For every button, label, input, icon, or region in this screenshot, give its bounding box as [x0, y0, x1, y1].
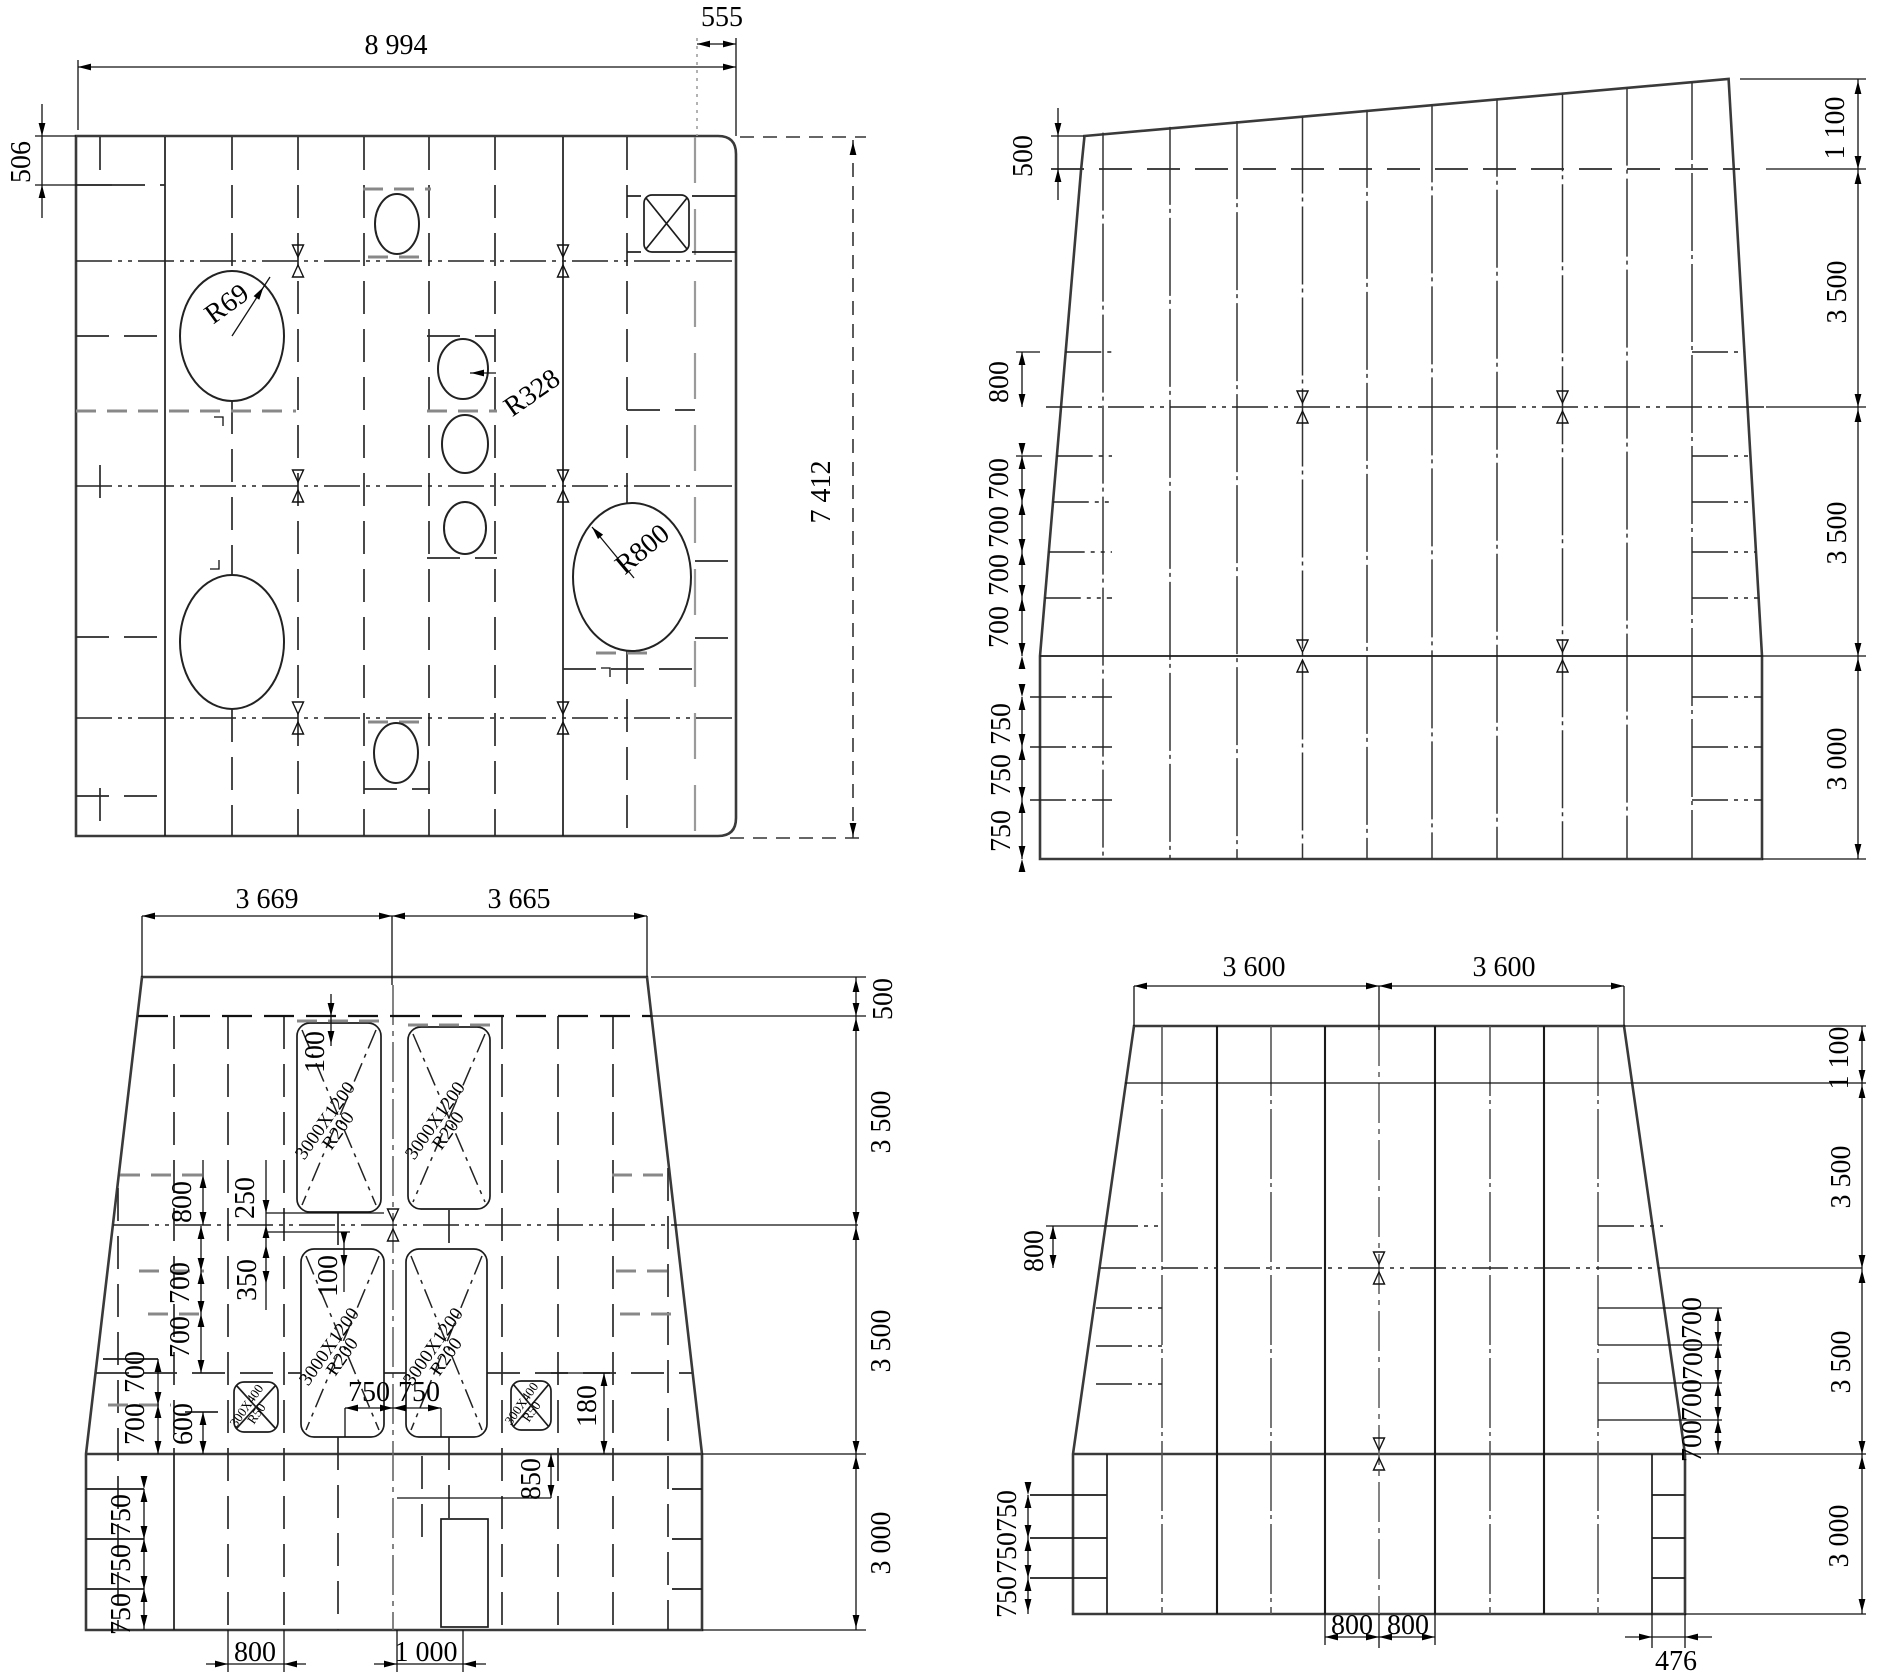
svg-text:700: 700 — [1677, 1297, 1708, 1339]
svg-text:3 500: 3 500 — [1826, 1146, 1857, 1209]
svg-text:3 000: 3 000 — [1822, 728, 1853, 791]
svg-text:3 500: 3 500 — [866, 1091, 897, 1154]
svg-text:700: 700 — [984, 506, 1015, 548]
svg-text:3 500: 3 500 — [866, 1310, 897, 1373]
svg-text:700: 700 — [165, 1316, 196, 1358]
svg-text:700: 700 — [120, 1403, 151, 1445]
svg-text:3 500: 3 500 — [1822, 261, 1853, 324]
svg-text:750: 750 — [106, 1494, 137, 1536]
svg-text:750: 750 — [992, 1490, 1023, 1532]
svg-text:350: 350 — [232, 1259, 263, 1301]
svg-text:700: 700 — [120, 1351, 151, 1393]
svg-text:700: 700 — [984, 554, 1015, 596]
svg-text:750: 750 — [348, 1377, 390, 1408]
svg-text:3 665: 3 665 — [488, 884, 551, 915]
svg-text:750: 750 — [986, 754, 1017, 796]
svg-text:250: 250 — [230, 1177, 261, 1219]
svg-text:3 500: 3 500 — [1826, 1331, 1857, 1394]
svg-text:506: 506 — [6, 141, 37, 183]
svg-text:1 100: 1 100 — [1820, 97, 1851, 160]
svg-text:3 500: 3 500 — [1822, 502, 1853, 565]
svg-text:750: 750 — [986, 810, 1017, 852]
svg-text:700: 700 — [984, 606, 1015, 648]
svg-text:3 600: 3 600 — [1473, 952, 1536, 983]
svg-text:3 000: 3 000 — [866, 1512, 897, 1575]
svg-text:555: 555 — [701, 2, 743, 33]
svg-text:700: 700 — [1677, 1420, 1708, 1462]
svg-text:3 000: 3 000 — [1824, 1505, 1855, 1568]
svg-text:500: 500 — [1008, 135, 1039, 177]
svg-text:500: 500 — [868, 978, 899, 1020]
svg-text:750: 750 — [986, 703, 1017, 745]
svg-text:3 600: 3 600 — [1223, 952, 1286, 983]
svg-text:750: 750 — [992, 1576, 1023, 1618]
svg-text:750: 750 — [992, 1532, 1023, 1574]
svg-text:100: 100 — [313, 1255, 344, 1297]
svg-text:700: 700 — [165, 1262, 196, 1304]
svg-text:800: 800 — [1019, 1230, 1050, 1272]
svg-text:750: 750 — [106, 1544, 137, 1586]
svg-text:800: 800 — [167, 1181, 198, 1223]
svg-text:750: 750 — [398, 1377, 440, 1408]
svg-text:700: 700 — [1677, 1379, 1708, 1421]
svg-text:180: 180 — [572, 1385, 603, 1427]
svg-text:476: 476 — [1655, 1646, 1697, 1677]
svg-text:7 412: 7 412 — [806, 461, 837, 524]
svg-text:750: 750 — [106, 1593, 137, 1635]
svg-text:3 669: 3 669 — [236, 884, 299, 915]
svg-text:100: 100 — [300, 1031, 331, 1073]
svg-text:700: 700 — [1678, 1338, 1709, 1380]
svg-text:800: 800 — [984, 361, 1015, 403]
svg-text:850: 850 — [516, 1458, 547, 1500]
svg-text:8 994: 8 994 — [365, 30, 428, 61]
svg-text:1 100: 1 100 — [1824, 1027, 1855, 1090]
svg-text:700: 700 — [984, 458, 1015, 500]
svg-text:600: 600 — [168, 1403, 199, 1445]
